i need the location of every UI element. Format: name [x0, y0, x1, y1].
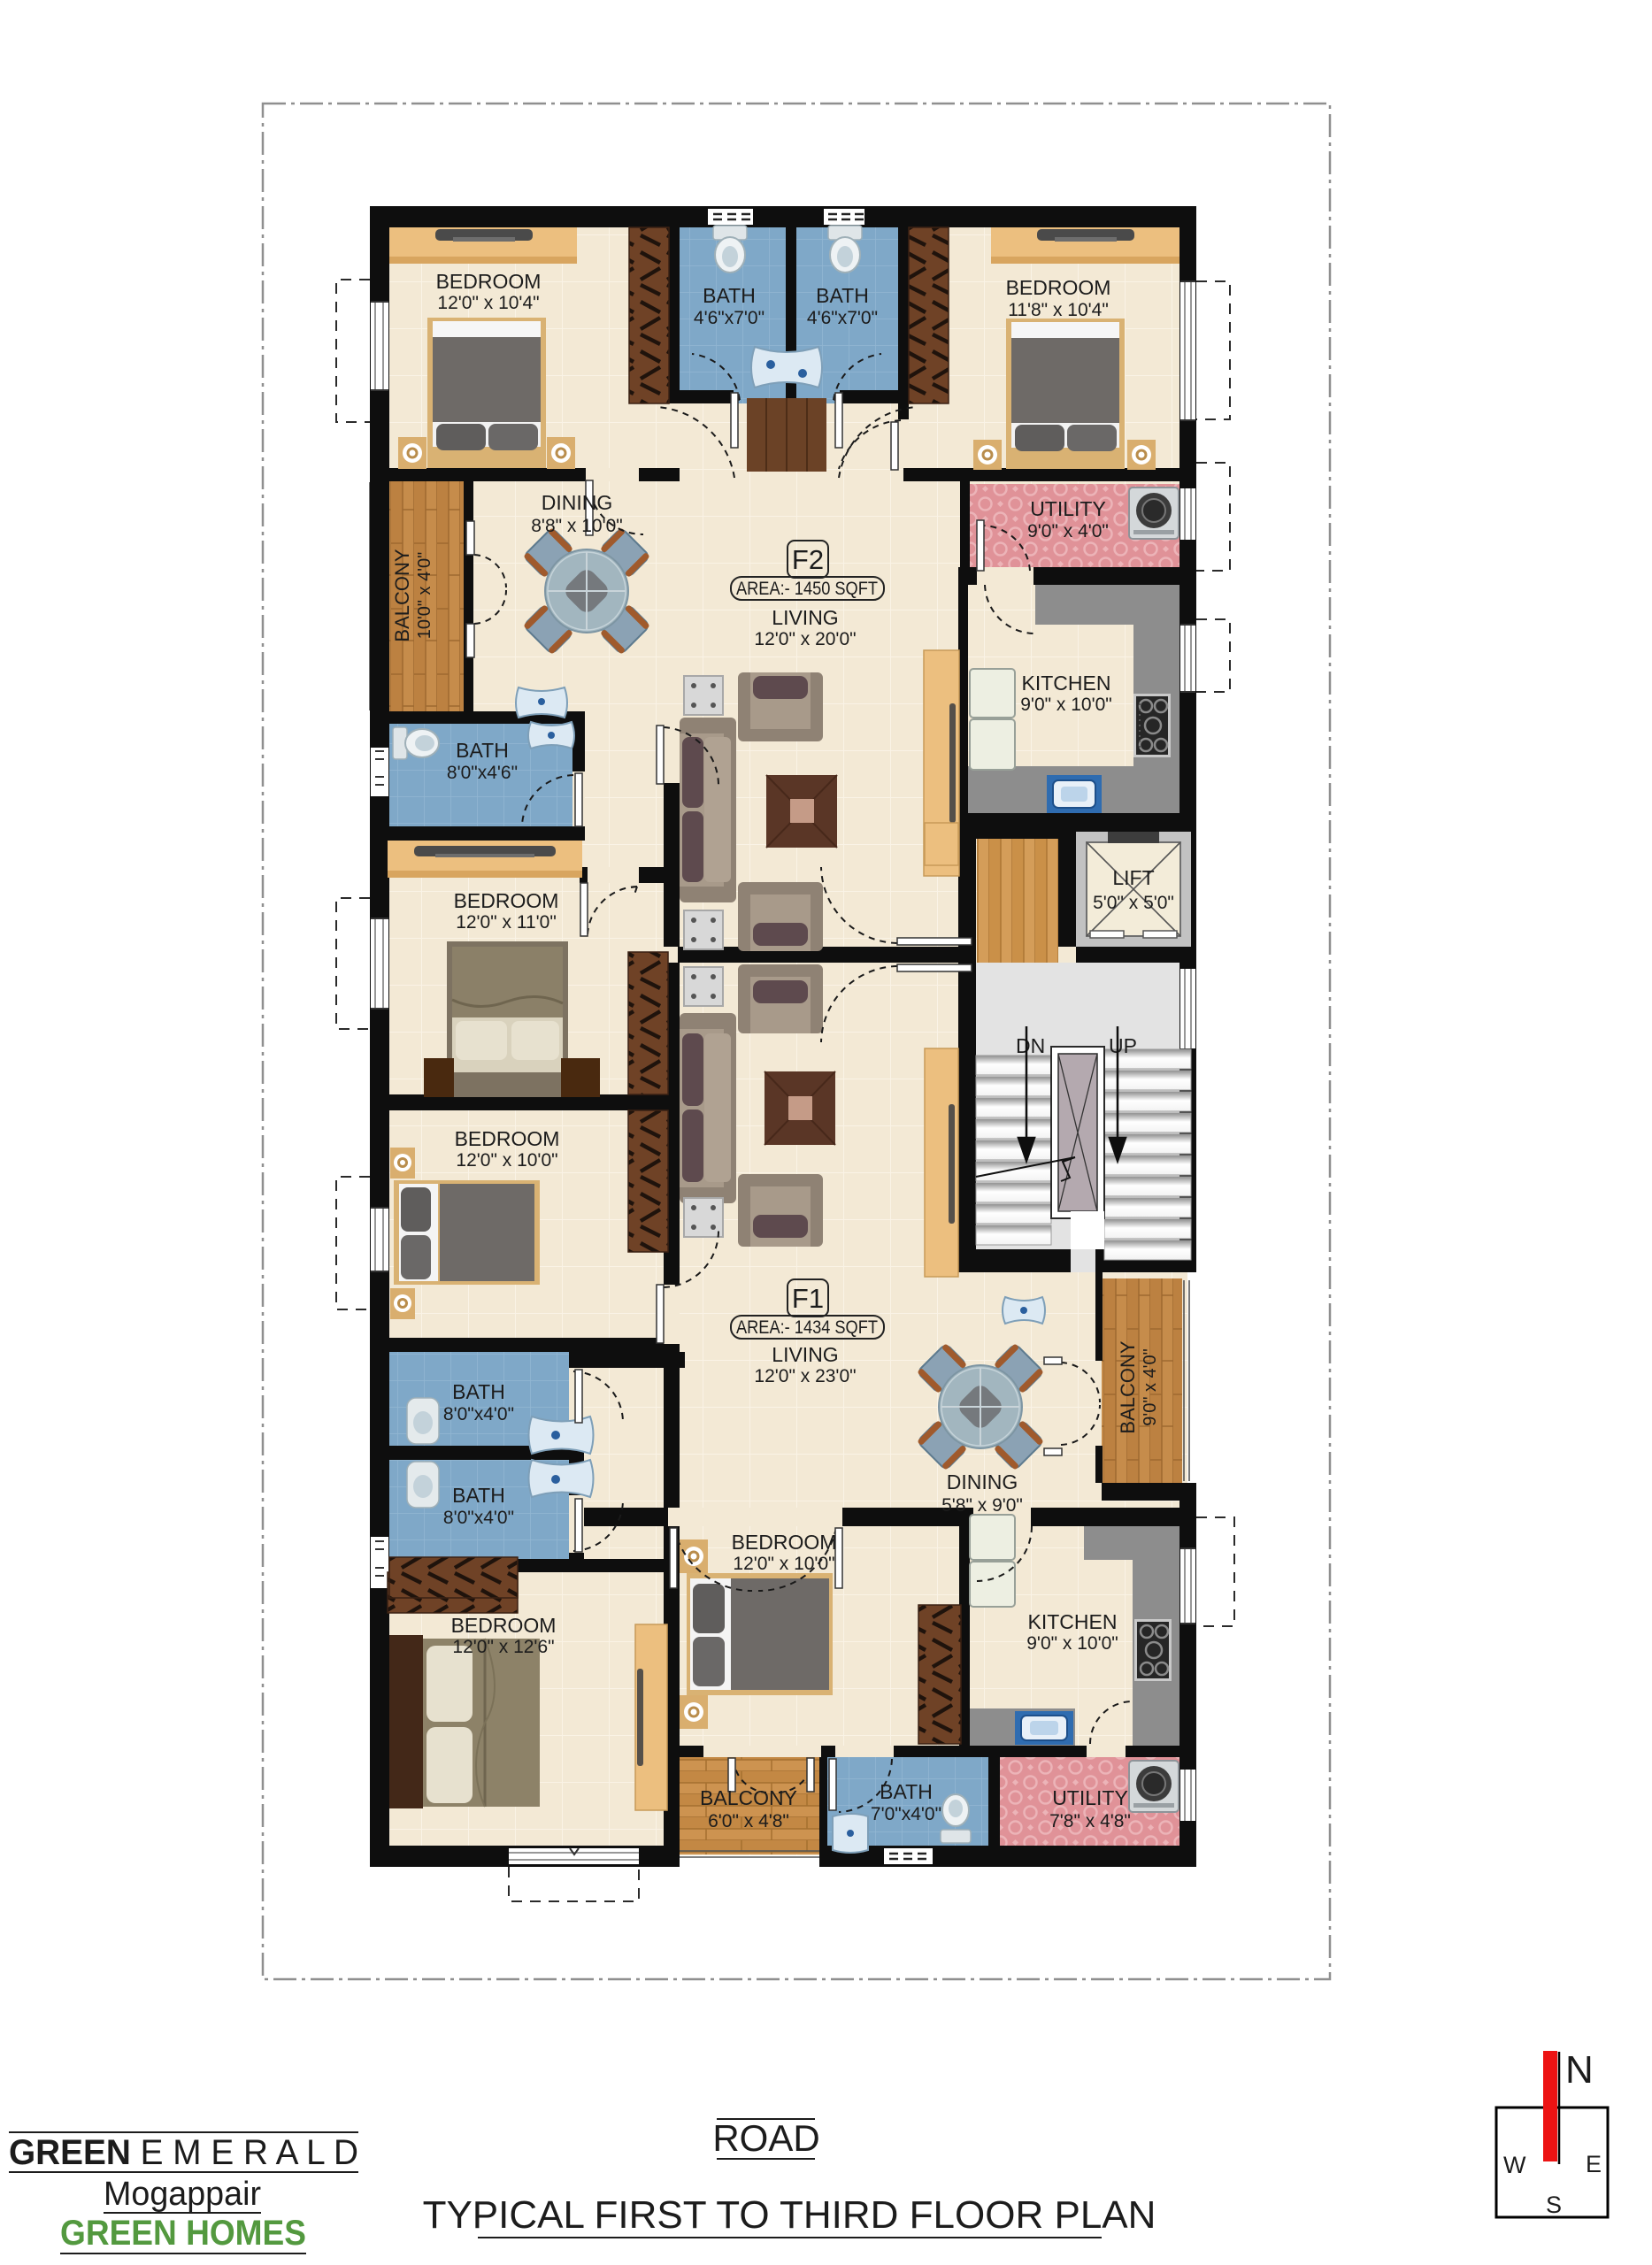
- svg-text:F1: F1: [792, 1283, 824, 1314]
- svg-text:ROAD: ROAD: [712, 2117, 819, 2159]
- svg-text:UP: UP: [1109, 1034, 1137, 1057]
- svg-text:TYPICAL FIRST TO THIRD FLOOR P: TYPICAL FIRST TO THIRD FLOOR PLAN: [423, 2193, 1156, 2237]
- svg-text:UTILITY: UTILITY: [1030, 497, 1106, 520]
- svg-text:LIVING: LIVING: [772, 606, 838, 629]
- svg-text:7'8" x 4'8": 7'8" x 4'8": [1049, 1811, 1131, 1831]
- svg-text:4'6"x7'0": 4'6"x7'0": [807, 308, 878, 328]
- svg-text:S: S: [1546, 2192, 1562, 2218]
- svg-text:12'0" x 10'0": 12'0" x 10'0": [733, 1554, 834, 1574]
- svg-text:AREA:- 1434 SQFT: AREA:- 1434 SQFT: [736, 1317, 878, 1338]
- svg-text:BATH: BATH: [703, 284, 756, 307]
- svg-text:6'0" x 4'8": 6'0" x 4'8": [708, 1811, 789, 1831]
- svg-text:DN: DN: [1016, 1034, 1045, 1057]
- svg-text:8'0"x4'0": 8'0"x4'0": [443, 1508, 514, 1528]
- svg-text:12'0" x 23'0": 12'0" x 23'0": [754, 1366, 856, 1386]
- svg-text:BATH: BATH: [452, 1380, 505, 1403]
- svg-text:8'8" x 10'0": 8'8" x 10'0": [531, 516, 623, 536]
- svg-text:DINING: DINING: [947, 1470, 1018, 1493]
- svg-text:BALCONY: BALCONY: [1117, 1340, 1139, 1433]
- svg-text:9'0" x 10'0": 9'0" x 10'0": [1020, 695, 1112, 715]
- svg-text:DINING: DINING: [542, 491, 613, 514]
- svg-text:BALCONY: BALCONY: [700, 1786, 797, 1809]
- svg-text:BEDROOM: BEDROOM: [732, 1531, 837, 1554]
- svg-text:F2: F2: [792, 544, 824, 575]
- svg-text:BALCONY: BALCONY: [391, 549, 413, 641]
- svg-text:BATH: BATH: [816, 284, 869, 307]
- svg-text:12'0" x 11'0": 12'0" x 11'0": [456, 912, 557, 933]
- svg-text:LIVING: LIVING: [772, 1343, 838, 1366]
- svg-text:GREEN E M E R A L D: GREEN E M E R A L D: [9, 2133, 358, 2172]
- svg-text:4'6"x7'0": 4'6"x7'0": [694, 308, 765, 328]
- svg-text:BEDROOM: BEDROOM: [1006, 276, 1111, 299]
- svg-text:W: W: [1503, 2152, 1526, 2178]
- svg-text:BATH: BATH: [452, 1484, 505, 1507]
- svg-text:12'0" x 10'0": 12'0" x 10'0": [456, 1150, 557, 1171]
- svg-text:10'0" x 4'0": 10'0" x 4'0": [415, 552, 434, 640]
- svg-text:LIFT: LIFT: [1112, 866, 1154, 889]
- svg-text:BATH: BATH: [880, 1780, 933, 1803]
- svg-text:N: N: [1565, 2048, 1594, 2092]
- svg-text:11'8" x 10'4": 11'8" x 10'4": [1008, 300, 1109, 320]
- svg-text:BEDROOM: BEDROOM: [436, 270, 542, 293]
- svg-text:BEDROOM: BEDROOM: [455, 1127, 560, 1150]
- svg-text:BEDROOM: BEDROOM: [454, 889, 559, 912]
- svg-text:BEDROOM: BEDROOM: [451, 1614, 557, 1637]
- svg-text:5'0" x 5'0": 5'0" x 5'0": [1093, 893, 1174, 913]
- svg-text:KITCHEN: KITCHEN: [1028, 1610, 1118, 1633]
- svg-text:UTILITY: UTILITY: [1052, 1786, 1128, 1809]
- svg-text:12'0" x 12'6": 12'0" x 12'6": [452, 1637, 554, 1657]
- svg-text:12'0" x 20'0": 12'0" x 20'0": [754, 629, 856, 649]
- svg-text:7'0"x4'0": 7'0"x4'0": [871, 1804, 941, 1824]
- svg-text:AREA:- 1450 SQFT: AREA:- 1450 SQFT: [736, 579, 878, 599]
- svg-text:E: E: [1586, 2151, 1602, 2177]
- svg-text:BATH: BATH: [456, 739, 509, 762]
- svg-text:KITCHEN: KITCHEN: [1022, 672, 1111, 695]
- svg-text:12'0" x 10'4": 12'0" x 10'4": [437, 293, 539, 313]
- svg-text:9'0" x 10'0": 9'0" x 10'0": [1026, 1633, 1118, 1654]
- svg-text:GREEN HOMES: GREEN HOMES: [60, 2214, 306, 2253]
- svg-text:9'0" x 4'0": 9'0" x 4'0": [1141, 1348, 1160, 1425]
- svg-text:9'0" x 4'0": 9'0" x 4'0": [1027, 521, 1109, 541]
- svg-text:Mogappair: Mogappair: [104, 2176, 261, 2213]
- svg-text:8'0"x4'6": 8'0"x4'6": [447, 763, 518, 783]
- svg-text:5'8" x 9'0": 5'8" x 9'0": [941, 1495, 1023, 1516]
- svg-text:8'0"x4'0": 8'0"x4'0": [443, 1404, 514, 1424]
